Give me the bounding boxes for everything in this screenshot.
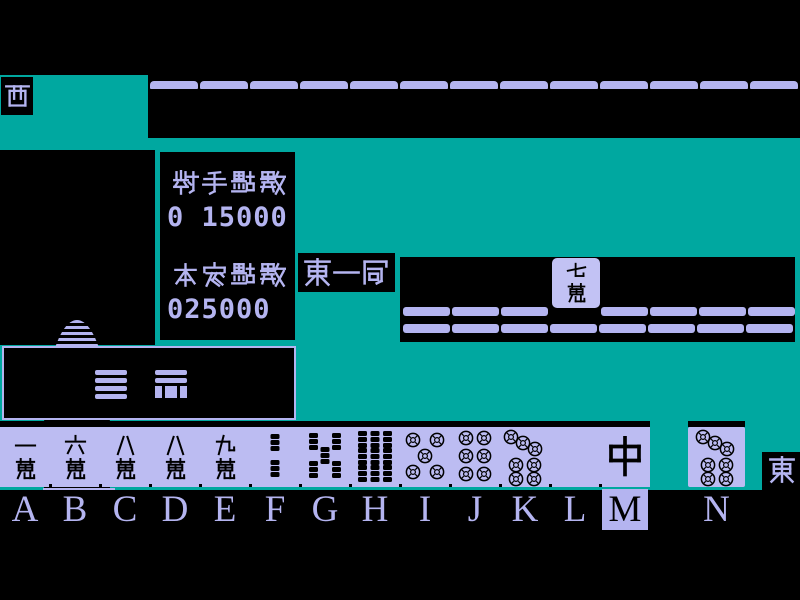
tile-letter-A[interactable]: A [0,491,50,528]
discard-tile-edge [650,307,697,316]
discard-edge-row [403,307,548,316]
round-label [303,258,390,287]
discard-tile-edge [452,324,499,333]
game-screen: 0 15000 025000 ABCDEFGHIJKLMN [0,0,800,600]
opponent-hand-tile [450,81,498,89]
opponent-score-value: 0 15000 [167,202,288,233]
wall-status-box [2,346,296,420]
opponent-score-label [172,170,286,197]
hand-tile-B[interactable] [50,427,100,487]
tile-letter-label[interactable]: E [214,489,237,530]
tile-letter-label[interactable]: K [512,489,539,530]
hand-tile-E[interactable] [200,427,250,487]
tile-letter-label[interactable]: J [468,489,482,530]
tile-letter-D[interactable]: D [150,491,200,528]
self-score-value: 025000 [167,294,271,325]
standing-discard-tile-label [566,262,587,304]
tile-letter-B[interactable]: B [50,491,100,528]
discard-tile-edge [697,324,744,333]
tile-letter-N[interactable]: N [688,491,745,528]
hand-tile-L[interactable] [550,427,600,487]
hand-tile-K[interactable] [500,427,550,487]
self-score-label [172,262,286,289]
drawn-tile[interactable] [688,427,745,487]
tower-panel [0,150,155,345]
standing-discard-tile [552,258,600,308]
tile-stack-legs-icon [155,370,187,398]
hand-tile-A[interactable] [0,427,50,487]
wind-east-indicator [762,452,800,600]
opponent-hand-tile [400,81,448,89]
score-panel: 0 15000 025000 [160,152,295,340]
discard-tile-edge [501,307,548,316]
tile-letter-C[interactable]: C [100,491,150,528]
opponent-hand-tile [300,81,348,89]
opponent-hand-tile [350,81,398,89]
round-indicator [298,253,395,292]
tile-letter-H[interactable]: H [350,491,400,528]
opponent-hand-tile [650,81,698,89]
opponent-hand-tiles [150,81,798,89]
opponent-hand-tile [500,81,548,89]
discard-tile-edge [746,324,793,333]
hand-tile-F[interactable] [250,427,300,487]
tile-letter-J[interactable]: J [450,491,500,528]
tile-letter-label[interactable]: L [564,489,587,530]
tile-letter-F[interactable]: F [250,491,300,528]
opponent-hand-area [148,58,800,138]
tile-letter-label[interactable]: H [362,489,389,530]
discard-tile-edge [403,324,450,333]
tile-letter-I[interactable]: I [400,491,450,528]
discard-edge-row [601,307,795,316]
opponent-hand-tile [700,81,748,89]
wind-west-label [4,83,31,110]
tile-stack-icon [95,370,127,399]
tile-letter-label[interactable]: I [419,489,431,530]
opponent-hand-tile [750,81,798,89]
discard-tile-edge [699,307,746,316]
selected-tile-letter[interactable]: M [602,489,649,530]
opponent-discard-area [400,257,795,342]
tile-letter-label[interactable]: N [703,489,730,530]
opponent-hand-tile [150,81,198,89]
opponent-hand-tile [600,81,648,89]
tile-letter-label[interactable]: A [12,489,39,530]
hand-tile-I[interactable] [400,427,450,487]
tile-letter-L[interactable]: L [550,491,600,528]
hand-tile-C[interactable] [100,427,150,487]
opponent-hand-tile [550,81,598,89]
hand-tile-M[interactable] [600,427,650,487]
discard-tile-edge [748,307,795,316]
wind-east-label [768,456,796,484]
tile-letter-label[interactable]: C [113,489,138,530]
discard-tile-edge [601,307,648,316]
wind-west-indicator [1,77,33,115]
discard-tile-edge [599,324,646,333]
tile-letter-label[interactable]: D [162,489,189,530]
discard-tile-edge [403,307,450,316]
hand-tile-J[interactable] [450,427,500,487]
player-hand [0,427,650,487]
hand-tile-G[interactable] [300,427,350,487]
discard-edge-row [403,324,793,333]
discard-tile-edge [550,324,597,333]
hand-tile-D[interactable] [150,427,200,487]
tile-letter-label[interactable]: B [63,489,88,530]
hand-tile-H[interactable] [350,427,400,487]
tile-letter-label[interactable]: F [265,489,286,530]
tile-letter-label[interactable]: G [312,489,339,530]
discard-tile-edge [501,324,548,333]
tile-letter-M[interactable]: M [600,491,650,528]
discard-tile-edge [452,307,499,316]
opponent-hand-tile [250,81,298,89]
tile-letter-K[interactable]: K [500,491,550,528]
discard-tile-edge [648,324,695,333]
tile-letter-E[interactable]: E [200,491,250,528]
opponent-hand-tile [200,81,248,89]
tile-letter-G[interactable]: G [300,491,350,528]
